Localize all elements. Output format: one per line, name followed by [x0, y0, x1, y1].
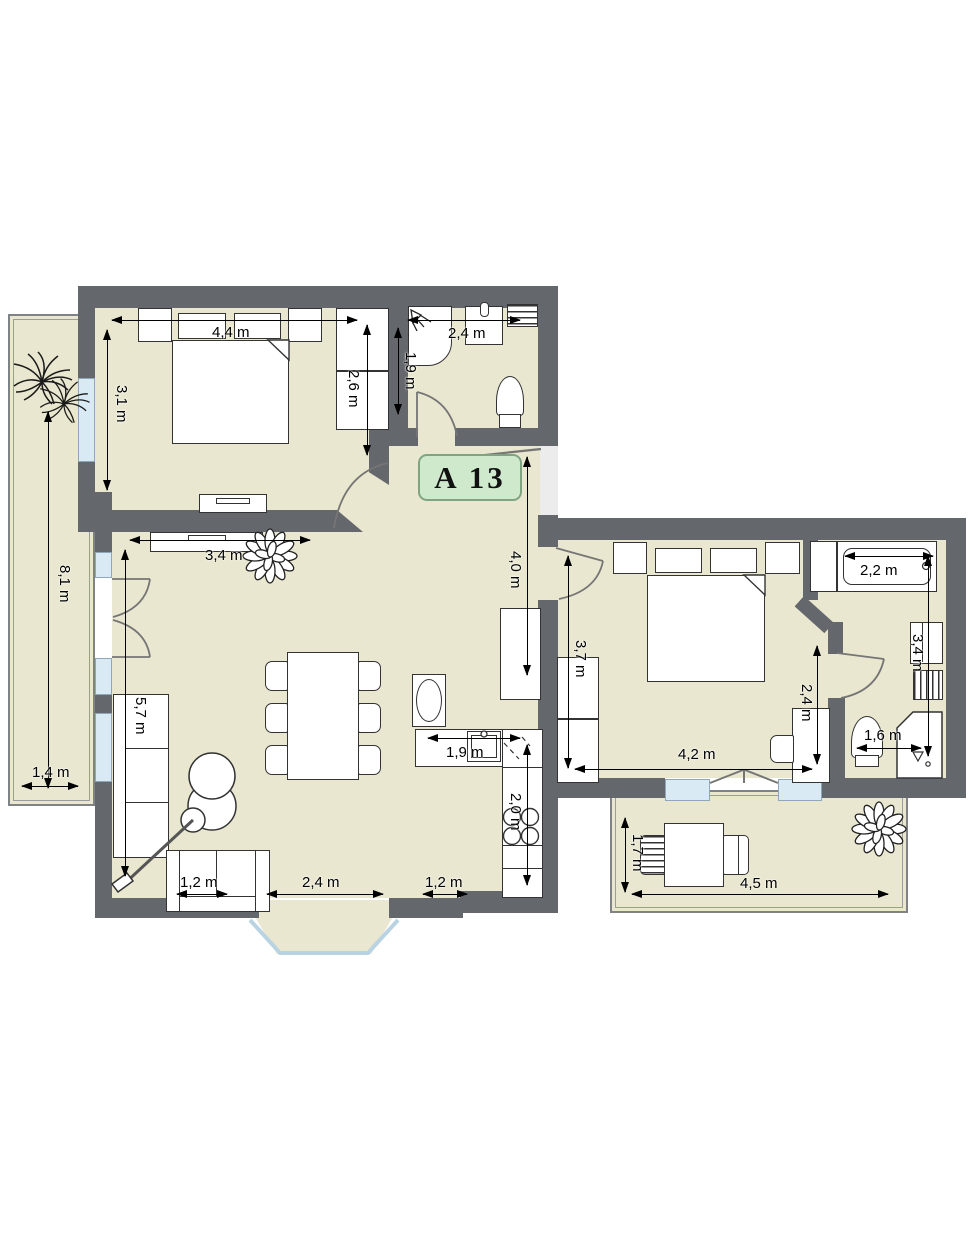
loveseat-armrest	[255, 850, 270, 912]
wall	[78, 510, 337, 532]
balcony-table	[664, 823, 724, 887]
dining-chair	[265, 745, 288, 775]
wall	[78, 308, 95, 378]
dim-balcony-right-width: 4,5 m	[632, 894, 888, 895]
dining-chair	[358, 745, 381, 775]
dining-table	[287, 652, 359, 780]
dim-bath2-width: 1,6 m	[857, 748, 921, 749]
window	[95, 713, 112, 782]
dining-chair	[265, 661, 288, 691]
wall	[822, 778, 966, 798]
window	[78, 378, 95, 462]
unit-label: A 13	[418, 454, 522, 501]
dim-bath1-width: 2,4 m	[408, 320, 520, 321]
counter-divider	[503, 767, 542, 768]
balcony-chair	[723, 835, 749, 875]
wall	[455, 428, 540, 446]
wall	[538, 286, 558, 446]
dim-sideboard-width: 3,4 m	[130, 540, 310, 541]
sofa-cushion	[125, 748, 169, 804]
desk-chair	[770, 735, 794, 763]
dim-bathtub-width: 2,2 m	[845, 556, 933, 557]
washbasin-tap	[480, 302, 489, 317]
dim-balcony-left-width: 1,4 m	[22, 786, 78, 787]
wall	[403, 898, 463, 918]
toilet-tank	[855, 755, 879, 767]
dim-bedroom1-depth: 3,1 m	[107, 330, 108, 490]
dining-chair	[265, 703, 288, 733]
floor-door-gap	[540, 547, 558, 600]
dim-living-depth: 5,7 m	[125, 550, 126, 876]
double-bed	[172, 340, 289, 444]
bed-pillow	[710, 548, 757, 573]
double-bed	[647, 575, 765, 682]
toilet-tank	[499, 414, 521, 428]
window	[665, 779, 710, 801]
wall	[78, 492, 112, 510]
dim-kitchen-clearance: 1,2 m	[423, 894, 467, 895]
nightstand	[765, 542, 800, 574]
wall	[946, 540, 966, 798]
hall-cabinet	[500, 608, 541, 700]
dim-bedroom2-side: 2,4 m	[817, 646, 818, 764]
nightstand	[138, 308, 172, 342]
wall	[545, 518, 966, 540]
wall	[95, 695, 112, 713]
balcony-chair-line	[738, 836, 739, 874]
kitchen-unit-basin	[416, 679, 442, 722]
nightstand	[613, 542, 647, 574]
loveseat-back	[179, 896, 256, 912]
bed-pillow	[655, 548, 702, 573]
sofa-cushion	[125, 802, 169, 858]
dim-bedroom2-depth: 3,7 m	[568, 556, 569, 768]
dining-chair	[358, 703, 381, 733]
dim-hall-length: 4,0 m	[527, 457, 528, 675]
dim-balcony-left-length: 8,1 m	[48, 412, 49, 788]
floorplan-canvas: 4,4 m 3,1 m 2,6 m 2,4 m 1,9 m 4,0 m 3,4 …	[0, 0, 968, 1254]
nightstand	[288, 308, 322, 342]
dim-bath2-depth: 3,4 m	[928, 556, 929, 756]
wall	[828, 698, 845, 780]
dim-bedroom1-width: 4,4 m	[112, 320, 357, 321]
counter-divider	[503, 868, 542, 869]
wardrobe-divider	[558, 718, 598, 720]
entry-opening	[540, 446, 558, 515]
wall	[389, 898, 403, 918]
dim-bath1-depth: 1,9 m	[398, 328, 399, 414]
counter-divider	[503, 845, 542, 846]
dim-living-clearance: 2,4 m	[267, 894, 383, 895]
dim-balcony-right-depth: 1,7 m	[625, 818, 626, 892]
wall	[828, 622, 843, 654]
dining-chair	[358, 661, 381, 691]
window	[95, 552, 112, 578]
wall	[386, 428, 418, 446]
dim-kitchen-counter: 1,9 m	[428, 738, 520, 739]
dim-kitchen-run: 2,0 m	[527, 745, 528, 885]
bath-cabinet	[810, 541, 837, 592]
dim-bedroom2-width: 4,2 m	[575, 769, 812, 770]
window	[95, 658, 112, 695]
dresser-handle	[216, 498, 250, 504]
dim-loveseat-width: 1,2 m	[177, 894, 227, 895]
dim-bedroom1-wardrobe: 2,6 m	[367, 325, 368, 455]
